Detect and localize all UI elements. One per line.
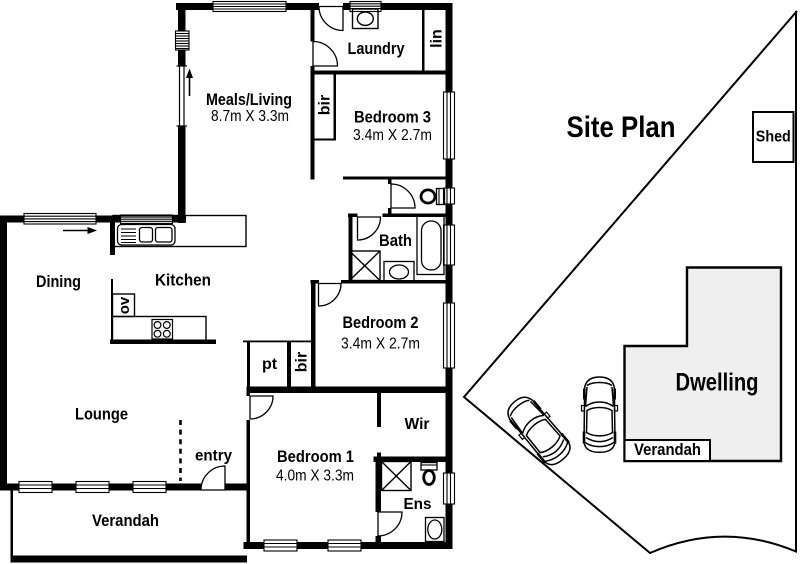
svg-text:Shed: Shed [756, 129, 791, 146]
svg-text:lin: lin [429, 29, 446, 48]
svg-text:3.4m X 2.7m: 3.4m X 2.7m [353, 127, 432, 144]
svg-text:Bedroom 3: Bedroom 3 [354, 108, 431, 127]
svg-text:Bedroom 2: Bedroom 2 [343, 313, 419, 332]
svg-text:Meals/Living: Meals/Living [206, 90, 292, 109]
svg-text:pt: pt [262, 356, 278, 373]
svg-text:Wir: Wir [405, 416, 430, 433]
svg-text:entry: entry [195, 448, 232, 465]
svg-text:Verandah: Verandah [634, 441, 701, 459]
svg-text:ov: ov [116, 296, 133, 314]
svg-text:Laundry: Laundry [348, 39, 405, 58]
svg-text:4.0m X 3.3m: 4.0m X 3.3m [276, 468, 354, 485]
svg-text:Dining: Dining [36, 272, 81, 291]
svg-text:Lounge: Lounge [75, 405, 128, 424]
svg-text:Dwelling: Dwelling [676, 369, 759, 397]
svg-text:bir: bir [294, 352, 311, 372]
svg-text:Site Plan: Site Plan [567, 111, 676, 144]
svg-text:Verandah: Verandah [92, 511, 159, 530]
svg-text:8.7m X 3.3m: 8.7m X 3.3m [211, 108, 289, 125]
svg-text:Bath: Bath [379, 231, 412, 250]
svg-text:bir: bir [317, 95, 334, 115]
svg-text:Kitchen: Kitchen [155, 271, 211, 290]
svg-text:3.4m X 2.7m: 3.4m X 2.7m [341, 336, 420, 353]
svg-text:Bedroom 1: Bedroom 1 [277, 447, 354, 466]
svg-text:Ens: Ens [404, 496, 432, 513]
